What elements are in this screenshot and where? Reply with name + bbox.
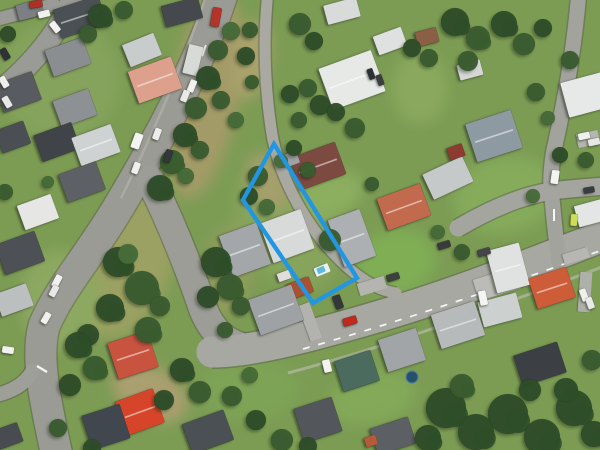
tree xyxy=(327,103,345,121)
tree xyxy=(552,147,568,163)
tree xyxy=(228,112,244,128)
tree xyxy=(77,342,93,358)
tree xyxy=(154,390,174,410)
tree xyxy=(281,85,299,103)
tree xyxy=(94,365,108,379)
tree xyxy=(427,435,443,450)
tree xyxy=(582,350,600,370)
tree xyxy=(420,49,438,67)
tree xyxy=(49,419,67,437)
tree xyxy=(242,22,258,38)
tree xyxy=(42,176,54,188)
tree xyxy=(565,387,579,401)
car-white-sw-4 xyxy=(2,346,15,355)
tree xyxy=(299,79,317,97)
tree xyxy=(461,383,475,397)
tree xyxy=(79,25,97,43)
tree xyxy=(207,75,221,89)
tree xyxy=(189,381,211,403)
tree xyxy=(222,22,240,40)
tree xyxy=(99,13,113,27)
trampoline-south xyxy=(406,371,418,383)
tree xyxy=(246,410,266,430)
lawn-top-right xyxy=(392,52,448,124)
tree xyxy=(237,47,255,65)
tree xyxy=(109,305,126,322)
tree xyxy=(526,189,540,203)
tree xyxy=(0,184,13,200)
tree xyxy=(541,111,555,125)
tree xyxy=(458,51,478,71)
aerial-photo-canvas[interactable] xyxy=(0,0,600,450)
tree xyxy=(212,91,230,109)
tree xyxy=(534,19,552,37)
tree xyxy=(245,75,259,89)
tree xyxy=(0,26,16,42)
tree xyxy=(222,386,242,406)
tree xyxy=(159,185,175,201)
tree xyxy=(232,297,250,315)
tree xyxy=(115,1,133,19)
tree xyxy=(300,162,316,178)
tree xyxy=(305,32,323,50)
tree xyxy=(578,152,594,168)
satellite-map[interactable] xyxy=(0,0,600,450)
car-yellow-ne xyxy=(570,214,578,226)
tree xyxy=(291,112,307,128)
tree xyxy=(185,97,207,119)
tree xyxy=(271,429,293,450)
tree xyxy=(519,379,541,401)
tree xyxy=(365,177,379,191)
tree xyxy=(215,258,233,276)
van-white-ne xyxy=(550,170,560,185)
tree xyxy=(513,33,535,55)
tree xyxy=(259,199,275,215)
tree xyxy=(191,141,209,159)
tree xyxy=(289,13,311,35)
tree xyxy=(527,83,545,101)
tree xyxy=(477,35,491,49)
tree xyxy=(474,428,496,450)
tree xyxy=(181,367,195,381)
tree xyxy=(118,244,138,264)
tree xyxy=(178,168,194,184)
yard-features xyxy=(406,371,418,383)
tree xyxy=(286,140,302,156)
tree xyxy=(345,118,365,138)
tree xyxy=(59,374,81,396)
tree xyxy=(454,244,470,260)
tree xyxy=(561,51,579,69)
tree xyxy=(197,286,219,308)
tree xyxy=(147,327,163,343)
tree xyxy=(503,21,519,37)
tree xyxy=(150,296,170,316)
tree xyxy=(208,40,228,60)
tree xyxy=(217,322,233,338)
tree xyxy=(431,225,445,239)
tree xyxy=(242,367,258,383)
tree xyxy=(403,39,421,57)
